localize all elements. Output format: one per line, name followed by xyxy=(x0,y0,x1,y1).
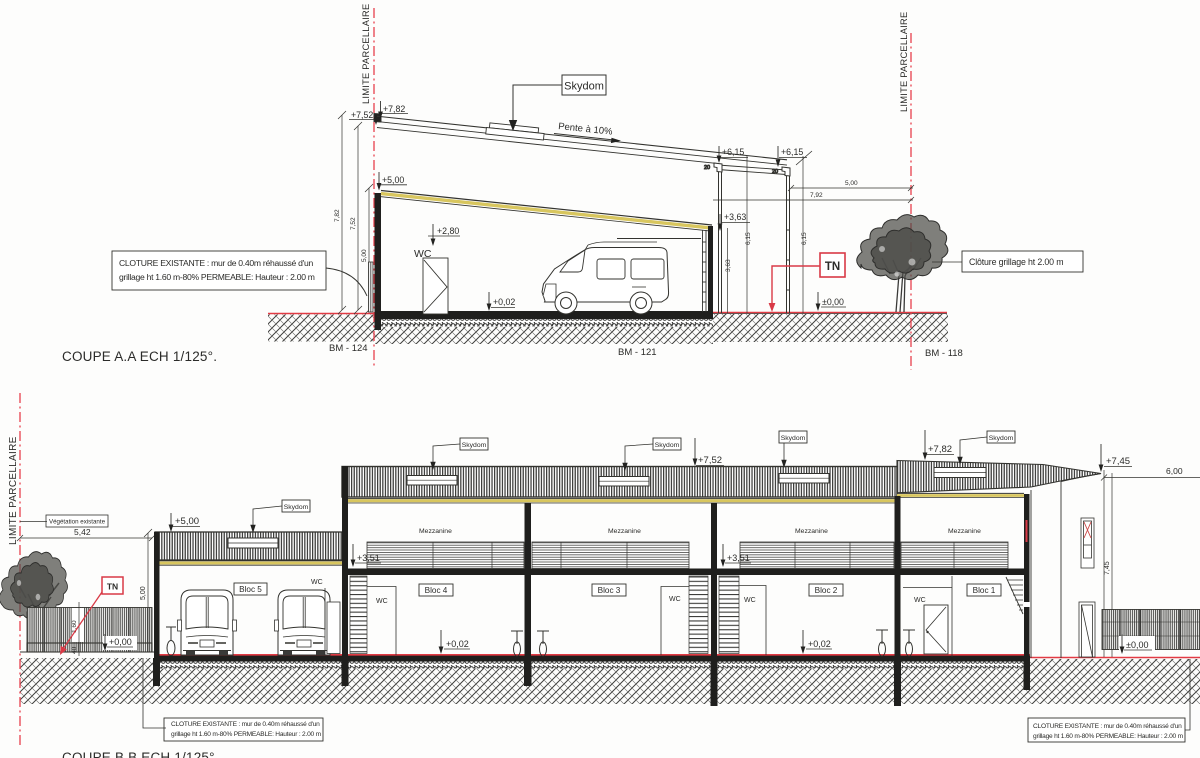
svg-text:6,15: 6,15 xyxy=(801,232,808,245)
svg-text:±0,00: ±0,00 xyxy=(822,297,844,307)
svg-text:20: 20 xyxy=(704,165,710,171)
svg-text:7,82: 7,82 xyxy=(334,209,341,222)
svg-text:+0,02: +0,02 xyxy=(446,639,469,649)
svg-text:20: 20 xyxy=(772,169,778,175)
svg-text:±0,00: ±0,00 xyxy=(1126,640,1148,650)
svg-text:+5,00: +5,00 xyxy=(175,516,199,527)
svg-text:Mezzanine: Mezzanine xyxy=(795,528,828,535)
svg-text:+7,45: +7,45 xyxy=(1106,456,1130,467)
svg-text:+7,82: +7,82 xyxy=(928,444,952,455)
svg-text:7,92: 7,92 xyxy=(810,192,823,199)
svg-text:COUPE B.B ECH 1/125°.: COUPE B.B ECH 1/125°. xyxy=(62,750,219,758)
svg-text:Bloc 2: Bloc 2 xyxy=(815,586,838,595)
svg-text:+0,02: +0,02 xyxy=(493,297,515,307)
svg-text:7,52: 7,52 xyxy=(350,217,357,230)
svg-text:CLOTURE EXISTANTE : mur de 0.4: CLOTURE EXISTANTE : mur de 0.40m réhauss… xyxy=(119,258,313,268)
svg-text:BM - 118: BM - 118 xyxy=(925,348,963,359)
svg-text:Skydom: Skydom xyxy=(989,435,1014,442)
svg-text:BM - 124: BM - 124 xyxy=(329,343,368,354)
svg-text:40: 40 xyxy=(71,646,78,654)
svg-text:7,45: 7,45 xyxy=(1104,561,1111,575)
svg-text:WC: WC xyxy=(376,598,388,605)
svg-text:LIMITE PARCELLAIRE: LIMITE PARCELLAIRE xyxy=(361,4,371,104)
svg-text:Clôture grillage ht 2.00 m: Clôture grillage ht 2.00 m xyxy=(969,257,1063,267)
svg-text:Végétation existante: Végétation existante xyxy=(49,519,106,526)
svg-text:5,00: 5,00 xyxy=(140,586,147,600)
svg-text:CLOTURE EXISTANTE : mur de 0.4: CLOTURE EXISTANTE : mur de 0.40m réhauss… xyxy=(171,721,320,728)
svg-text:Bloc 1: Bloc 1 xyxy=(973,586,996,595)
svg-text:+5,00: +5,00 xyxy=(382,175,404,185)
svg-text:LIMITE PARCELLAIRE: LIMITE PARCELLAIRE xyxy=(8,436,19,545)
svg-text:WC: WC xyxy=(311,579,323,586)
svg-text:Bloc 4: Bloc 4 xyxy=(425,586,448,595)
svg-text:WC: WC xyxy=(669,596,681,603)
svg-text:grillage ht 1.60 m-80% PERMEAB: grillage ht 1.60 m-80% PERMEABLE: Hauteu… xyxy=(119,272,315,282)
svg-text:+0,00: +0,00 xyxy=(109,637,132,647)
svg-text:+7,82: +7,82 xyxy=(383,104,405,114)
svg-text:6,00: 6,00 xyxy=(1166,466,1183,476)
svg-text:+3,51: +3,51 xyxy=(727,553,750,563)
svg-text:grillage ht 1.60 m-80% PERMEAB: grillage ht 1.60 m-80% PERMEABLE: Hauteu… xyxy=(1033,733,1184,740)
svg-text:COUPE A.A ECH 1/125°.: COUPE A.A ECH 1/125°. xyxy=(62,349,217,364)
svg-text:6,15: 6,15 xyxy=(745,232,752,245)
svg-text:5,00: 5,00 xyxy=(361,249,368,262)
svg-text:+7,52: +7,52 xyxy=(698,455,722,466)
svg-text:+3,51: +3,51 xyxy=(357,553,380,563)
svg-text:Mezzanine: Mezzanine xyxy=(419,528,452,535)
svg-text:+7,52: +7,52 xyxy=(351,110,373,120)
svg-text:+2,80: +2,80 xyxy=(437,226,459,236)
svg-text:TN: TN xyxy=(107,582,118,592)
svg-text:WC: WC xyxy=(744,597,756,604)
svg-text:5,42: 5,42 xyxy=(74,527,91,537)
svg-text:+6,15: +6,15 xyxy=(781,147,803,157)
svg-text:Skydom: Skydom xyxy=(655,442,680,449)
svg-text:grillage ht 1.60 m-80% PERMEAB: grillage ht 1.60 m-80% PERMEABLE: Hauteu… xyxy=(171,731,322,738)
svg-text:Mezzanine: Mezzanine xyxy=(608,528,641,535)
svg-text:LIMITE PARCELLAIRE: LIMITE PARCELLAIRE xyxy=(899,12,909,112)
svg-text:+3,63: +3,63 xyxy=(724,212,746,222)
svg-text:Bloc 3: Bloc 3 xyxy=(598,586,621,595)
svg-text:3,63: 3,63 xyxy=(725,259,732,272)
svg-text:+6,15: +6,15 xyxy=(722,147,744,157)
svg-text:Skydom: Skydom xyxy=(781,435,806,442)
svg-text:+0,02: +0,02 xyxy=(808,639,831,649)
svg-text:CLOTURE EXISTANTE : mur de 0.4: CLOTURE EXISTANTE : mur de 0.40m réhauss… xyxy=(1033,723,1182,730)
svg-text:Skydom: Skydom xyxy=(284,504,309,511)
svg-text:WC: WC xyxy=(914,597,926,604)
svg-text:BM - 121: BM - 121 xyxy=(618,347,657,358)
svg-text:Skydom: Skydom xyxy=(462,442,487,449)
svg-text:Skydom: Skydom xyxy=(564,81,604,93)
svg-text:TN: TN xyxy=(825,261,840,273)
svg-text:5,00: 5,00 xyxy=(845,180,858,187)
svg-text:Mezzanine: Mezzanine xyxy=(948,528,981,535)
svg-text:Bloc 5: Bloc 5 xyxy=(239,585,262,594)
